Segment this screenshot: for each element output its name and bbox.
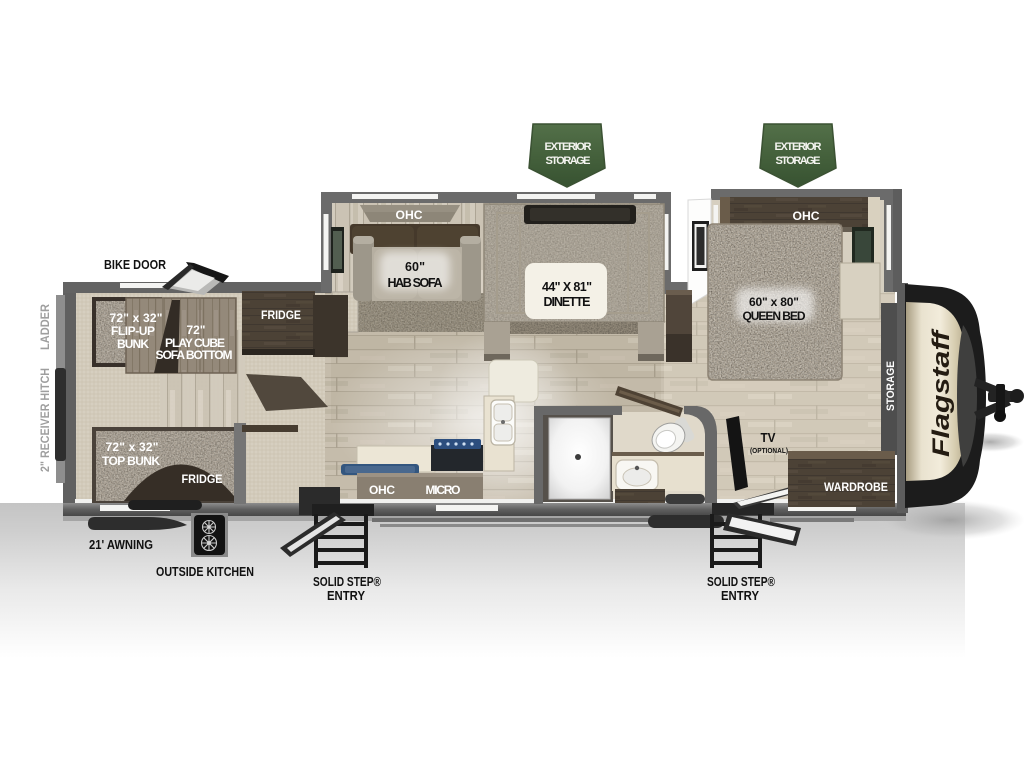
svg-text:SOLID STEP®: SOLID STEP® <box>707 575 776 589</box>
svg-text:EXTERIOR: EXTERIOR <box>545 141 592 153</box>
svg-text:TOP BUNK: TOP BUNK <box>102 454 160 468</box>
svg-text:DINETTE: DINETTE <box>544 295 591 309</box>
svg-text:STORAGE: STORAGE <box>885 361 897 411</box>
svg-text:SOLID STEP®: SOLID STEP® <box>313 575 382 589</box>
svg-text:21' AWNING: 21' AWNING <box>89 537 153 552</box>
svg-text:QUEEN BED: QUEEN BED <box>743 309 806 323</box>
svg-text:EXTERIOR: EXTERIOR <box>775 141 822 153</box>
svg-text:2" RECEIVER HITCH: 2" RECEIVER HITCH <box>38 368 52 472</box>
svg-text:TV: TV <box>761 430 776 445</box>
svg-text:SOFA BOTTOM: SOFA BOTTOM <box>156 348 233 362</box>
svg-text:72" x 32": 72" x 32" <box>110 311 163 325</box>
svg-text:OHC: OHC <box>396 208 423 222</box>
svg-text:ENTRY: ENTRY <box>327 588 365 603</box>
svg-text:44" X 81": 44" X 81" <box>542 280 592 294</box>
svg-text:Flagstaff: Flagstaff <box>928 328 955 457</box>
svg-text:WARDROBE: WARDROBE <box>824 480 888 494</box>
svg-text:60": 60" <box>405 260 425 274</box>
svg-text:FRIDGE: FRIDGE <box>261 308 301 322</box>
svg-text:OUTSIDE KITCHEN: OUTSIDE KITCHEN <box>156 564 254 579</box>
svg-text:HAB SOFA: HAB SOFA <box>388 276 443 290</box>
svg-text:60" x 80": 60" x 80" <box>749 295 799 309</box>
svg-text:72": 72" <box>187 323 206 337</box>
svg-text:STORAGE: STORAGE <box>776 155 821 167</box>
svg-text:72" x 32": 72" x 32" <box>106 440 159 454</box>
svg-text:FRIDGE: FRIDGE <box>182 472 223 486</box>
svg-text:(OPTIONAL): (OPTIONAL) <box>750 446 788 455</box>
svg-text:OHC: OHC <box>793 209 820 223</box>
svg-text:LADDER: LADDER <box>38 304 52 350</box>
svg-text:BIKE DOOR: BIKE DOOR <box>104 258 166 272</box>
svg-text:MICRO: MICRO <box>426 483 461 497</box>
svg-text:BUNK: BUNK <box>117 337 149 351</box>
svg-text:STORAGE: STORAGE <box>546 155 591 167</box>
svg-text:ENTRY: ENTRY <box>721 588 759 603</box>
svg-text:OHC: OHC <box>369 483 395 497</box>
svg-text:FLIP-UP: FLIP-UP <box>111 324 155 338</box>
